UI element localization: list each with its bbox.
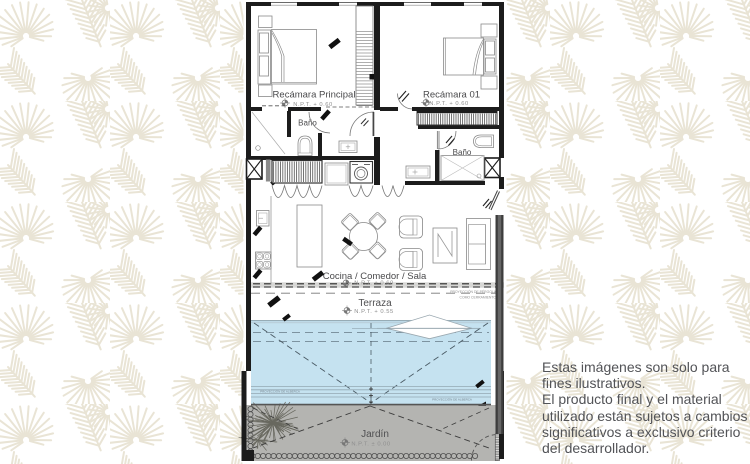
svg-text:COMO CERRAMIENTO: COMO CERRAMIENTO bbox=[460, 296, 497, 300]
svg-text:N.P.T. + 0.60: N.P.T. + 0.60 bbox=[429, 101, 468, 107]
svg-text:PROYECCIÓN DE ALBERCA: PROYECCIÓN DE ALBERCA bbox=[260, 389, 300, 394]
svg-text:Jardín: Jardín bbox=[361, 429, 389, 440]
svg-text:PROYECCIÓN DE PÉRGOLA: PROYECCIÓN DE PÉRGOLA bbox=[450, 289, 497, 294]
svg-text:N.P.T. + 0.60: N.P.T. + 0.60 bbox=[354, 281, 393, 287]
svg-text:N.P.T. ± 0.00: N.P.T. ± 0.00 bbox=[351, 442, 390, 448]
svg-text:PROYECCIÓN DE ALBERCA: PROYECCIÓN DE ALBERCA bbox=[432, 396, 472, 401]
svg-text:Recámara 01: Recámara 01 bbox=[423, 90, 480, 101]
svg-text:N.P.T. + 0.55: N.P.T. + 0.55 bbox=[354, 309, 393, 315]
svg-text:Terraza: Terraza bbox=[358, 298, 392, 309]
